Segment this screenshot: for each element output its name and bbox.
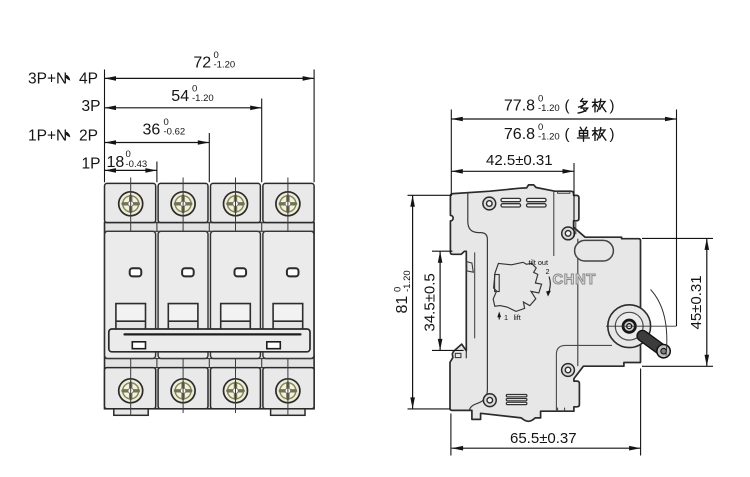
svg-text:45±0.31: 45±0.31 xyxy=(688,275,705,329)
svg-text:-1.20: -1.20 xyxy=(538,103,560,114)
svg-text:): ) xyxy=(610,126,615,143)
svg-text:2: 2 xyxy=(546,267,550,276)
svg-text:4P: 4P xyxy=(79,71,98,88)
svg-text:36: 36 xyxy=(143,122,161,139)
svg-text:3P: 3P xyxy=(82,98,101,115)
svg-text:3P+N: 3P+N xyxy=(28,71,67,88)
svg-text:65.5±0.37: 65.5±0.37 xyxy=(510,430,577,447)
svg-text:-1.20: -1.20 xyxy=(192,93,214,104)
svg-text:tilt out: tilt out xyxy=(529,258,548,267)
svg-text:77.8: 77.8 xyxy=(504,98,535,115)
svg-text:lift: lift xyxy=(514,313,521,322)
svg-text:1: 1 xyxy=(504,313,508,322)
svg-text:-0.62: -0.62 xyxy=(164,127,186,138)
svg-text:54: 54 xyxy=(171,88,189,105)
svg-text:-1.20: -1.20 xyxy=(214,59,236,70)
svg-text:-1.20: -1.20 xyxy=(538,132,560,143)
svg-text:CHNT: CHNT xyxy=(553,272,597,288)
svg-text:72: 72 xyxy=(193,54,211,71)
svg-text:18: 18 xyxy=(107,154,125,171)
svg-text:-0.43: -0.43 xyxy=(126,159,148,170)
svg-text:81: 81 xyxy=(394,296,411,314)
svg-text:42.5±0.31: 42.5±0.31 xyxy=(486,152,553,169)
svg-text:-1.20: -1.20 xyxy=(402,270,413,292)
svg-text:(: ( xyxy=(565,98,570,115)
svg-text:(: ( xyxy=(565,126,570,143)
svg-text:34.5±0.5: 34.5±0.5 xyxy=(422,273,439,331)
svg-text:76.8: 76.8 xyxy=(504,126,535,143)
svg-text:2P: 2P xyxy=(79,127,98,144)
svg-text:): ) xyxy=(610,98,615,115)
svg-text:1P: 1P xyxy=(82,156,101,173)
svg-text:1P+N: 1P+N xyxy=(28,127,67,144)
